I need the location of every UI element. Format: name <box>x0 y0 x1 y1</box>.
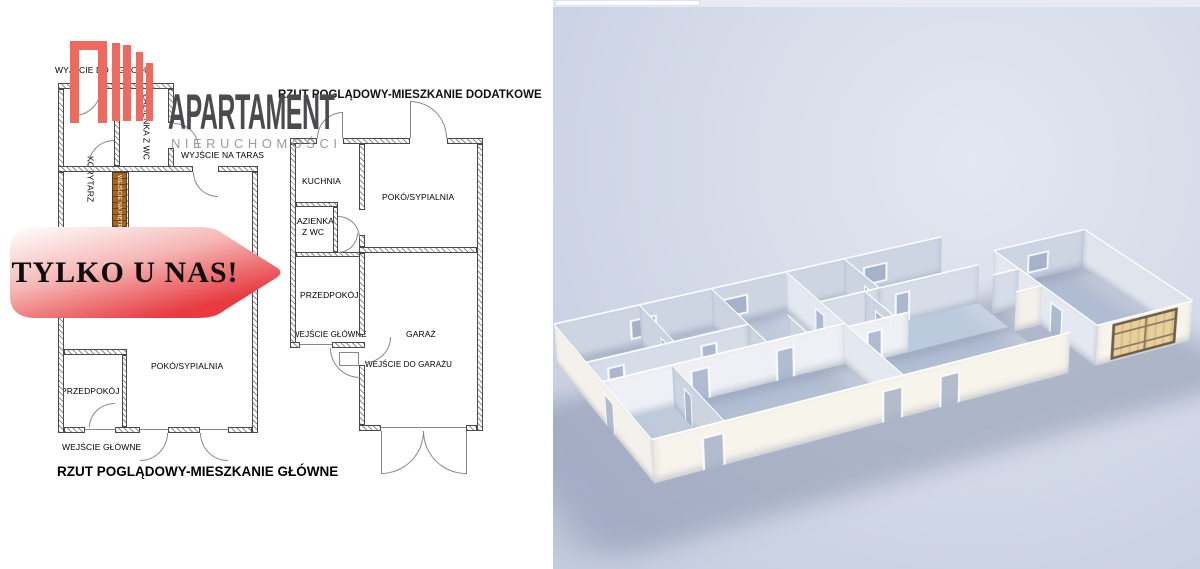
wall-segment <box>58 89 64 172</box>
door-swing-arc <box>88 140 114 166</box>
wall-3d <box>1015 284 1043 331</box>
wall-segment <box>64 349 127 355</box>
door-sill <box>140 429 168 430</box>
wall-segment <box>296 252 365 257</box>
brand-name: APARTAMENT <box>168 93 334 131</box>
wall-segment <box>122 355 127 427</box>
wall-segment <box>359 247 477 253</box>
room-label-garaz: GARAŻ <box>406 329 436 340</box>
door-swing-arc <box>200 433 228 461</box>
wall-segment <box>64 427 85 433</box>
door-panel-3d <box>939 371 960 408</box>
promo-banner-text: TYLKO U NAS! <box>11 256 238 289</box>
wall-segment <box>115 427 140 433</box>
floor-plan-3d-render <box>553 0 1200 569</box>
room-label-pokoj-additional: POKÓ/SYPIALNIA <box>382 192 454 203</box>
label-wejscie-glowne-additional: WEJŚCIE GŁÓWNE <box>292 330 367 340</box>
room-label-kuchnia: KUCHNIA <box>302 176 341 187</box>
buildings-logo-icon <box>68 36 160 124</box>
label-wejscie-glowne-main: WEJŚCIE GŁÓWNE <box>62 442 141 453</box>
label-wejscie-do-garazu: WEJŚCIE DO GARAŻU <box>365 360 452 370</box>
room-label-przedpokoj-additional: PRZEDPOKÓJ <box>300 290 359 301</box>
wall-segment <box>466 425 477 431</box>
brand-logo: APARTAMENT NIERUCHOMOŚCI <box>68 36 368 126</box>
render-scene <box>553 0 1200 569</box>
door-panel-3d <box>882 385 903 422</box>
brand-subtitle: NIERUCHOMOŚCI <box>171 136 341 151</box>
label-wyjscie-na-taras: WYJŚCIE NA TARAS <box>181 150 264 161</box>
door-swing-arc <box>89 403 115 427</box>
door-sill <box>381 427 466 428</box>
real-estate-flyer: APARTAMENT NIERUCHOMOŚCI RZUT POGLĄDOWY-… <box>0 0 1200 569</box>
room-label-przedpokoj-main: PRZEDPOKÓJ <box>61 386 120 397</box>
floor-plan-3d-world <box>557 248 1190 483</box>
door-panel-3d <box>776 346 795 381</box>
door-swing-arc <box>338 233 358 253</box>
wall-segment <box>228 427 252 433</box>
wall-segment <box>290 342 300 348</box>
door-swing-arc <box>423 431 466 474</box>
door-leaf <box>381 431 382 474</box>
floor-plan-panel: APARTAMENT NIERUCHOMOŚCI RZUT POGLĄDOWY-… <box>0 0 553 569</box>
wall-segment <box>168 427 200 433</box>
wall-segment <box>359 144 365 210</box>
wall-segment <box>477 144 483 431</box>
door-panel-3d <box>702 432 726 471</box>
room-label-pokoj-main: POKÓ/SYPIALNIA <box>151 361 223 372</box>
wall-segment <box>343 138 410 144</box>
wall-segment <box>296 202 338 207</box>
door-sill <box>200 429 228 430</box>
door-leaf <box>466 431 467 474</box>
room-label-lazienka-additional: ŁAZIENKA Z WC <box>290 216 336 237</box>
promo-banner: TYLKO U NAS! <box>6 224 294 322</box>
door-leaf <box>410 101 411 138</box>
door-symbol <box>339 352 359 366</box>
door-swing-arc <box>193 172 218 197</box>
door-sill <box>85 429 115 430</box>
main-plan-caption: RZUT POGLĄDOWY-MIESZKANIE GŁÓWNE <box>57 464 338 479</box>
wall-segment <box>359 425 381 431</box>
door-swing-arc <box>140 433 168 461</box>
wall-segment <box>359 253 365 335</box>
window-3d <box>1027 250 1049 274</box>
door-sill <box>300 344 332 345</box>
door-swing-arc <box>410 101 447 138</box>
door-swing-arc <box>381 431 424 474</box>
